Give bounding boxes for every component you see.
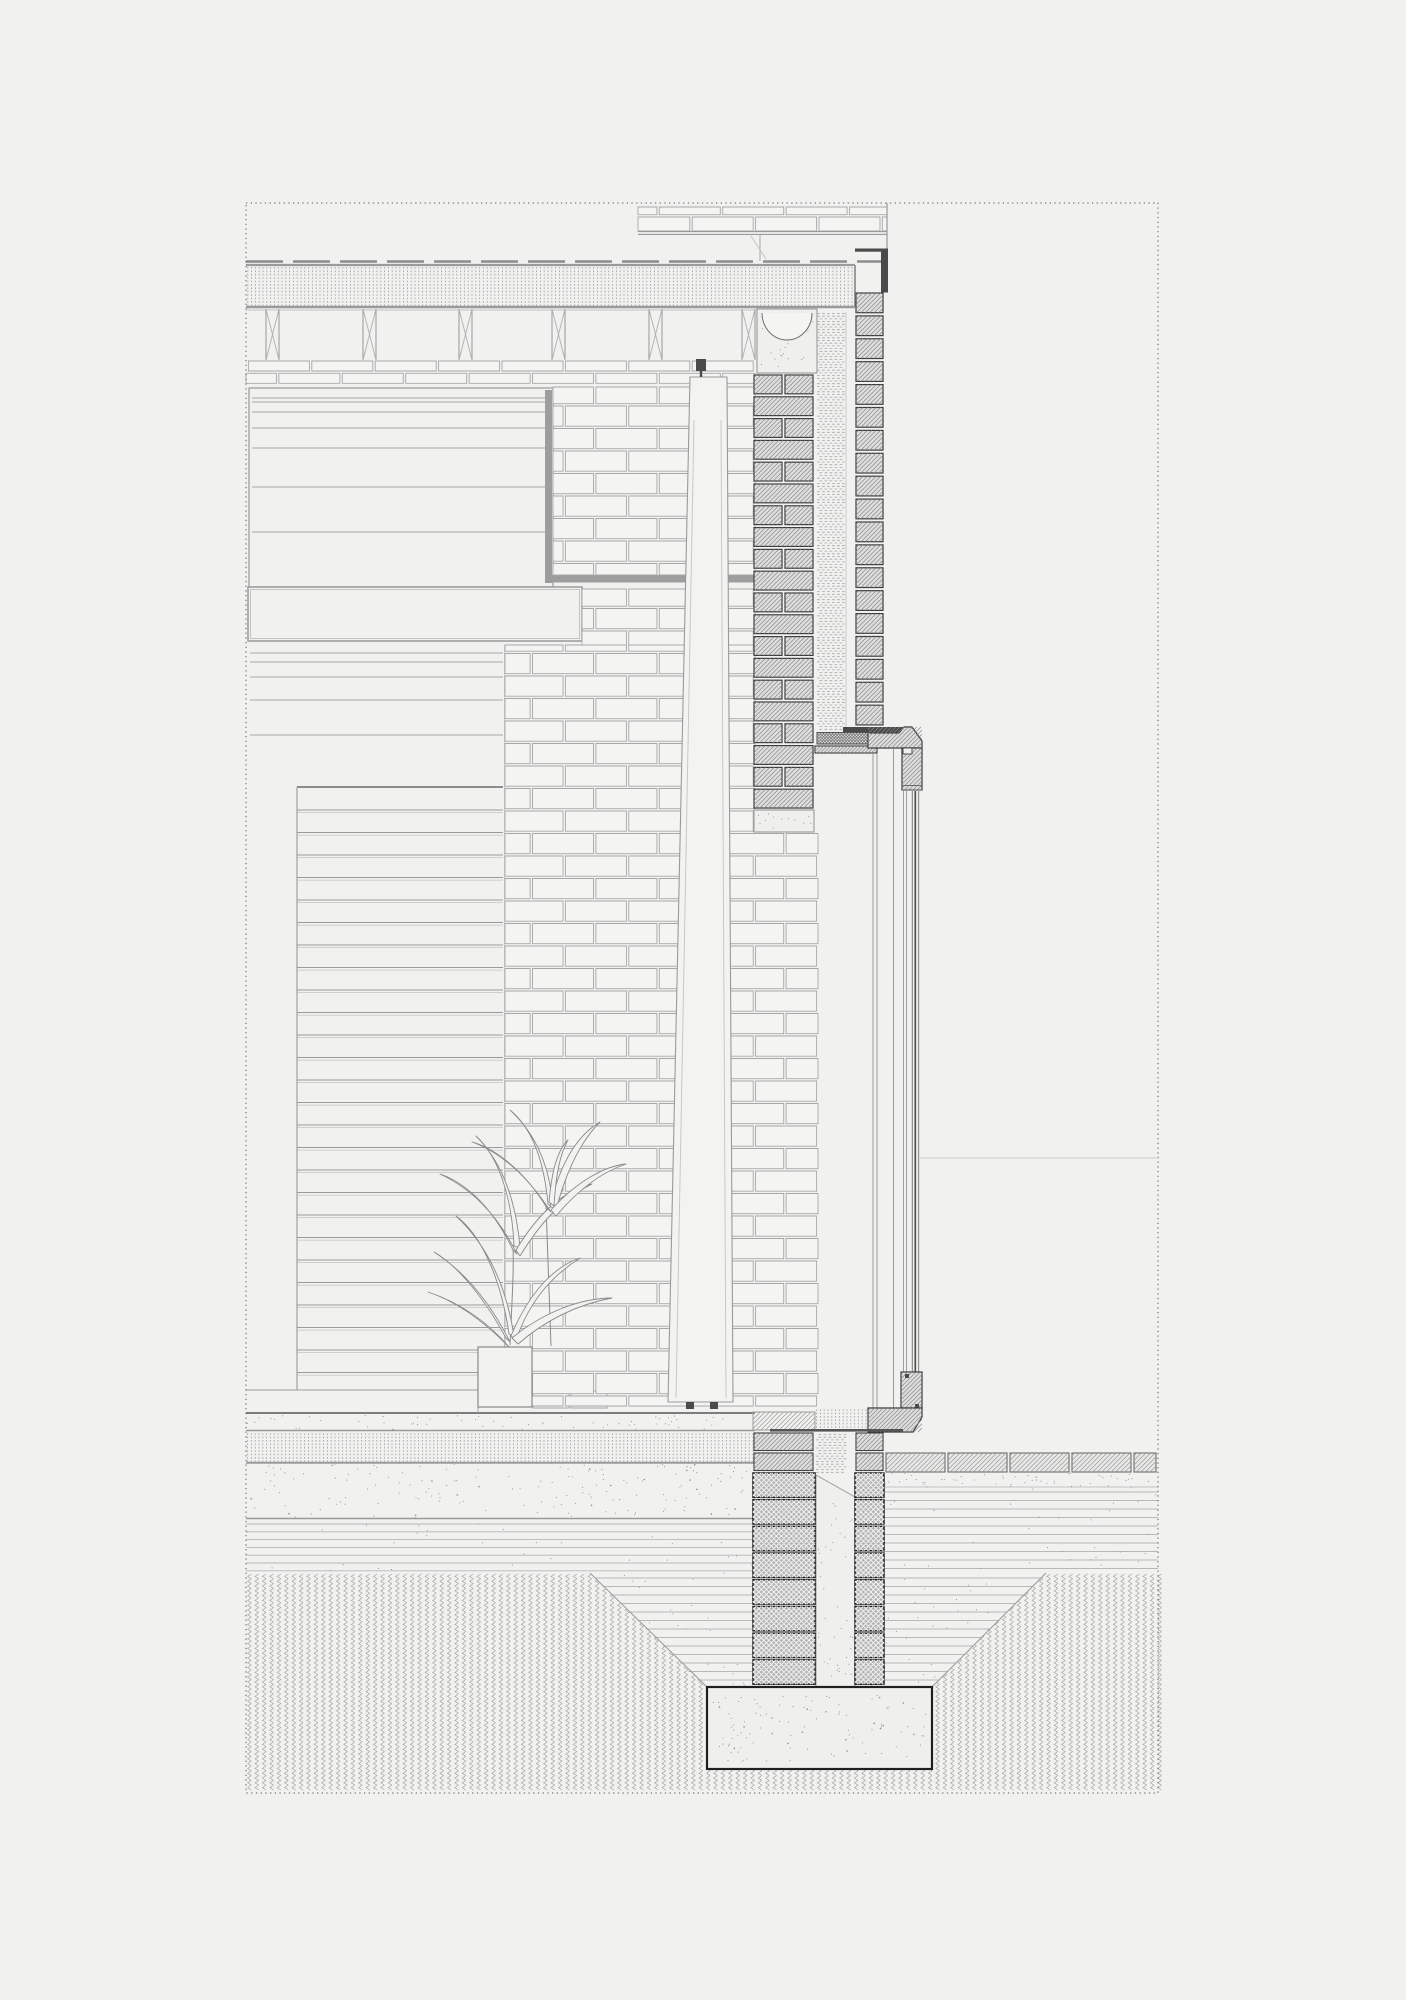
ground-and-foundation [246,1409,1162,1790]
section-detail-drawing [0,0,1406,2000]
drawing-sheet [0,0,1406,2000]
cavity-wall-section [754,293,907,832]
window-assembly [770,727,1156,1432]
roof-assembly [246,0,888,310]
ceiling-joists [266,309,755,360]
